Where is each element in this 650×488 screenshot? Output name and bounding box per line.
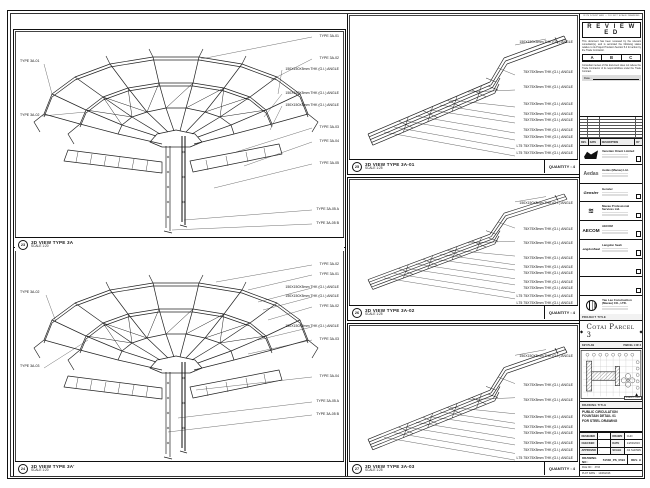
drawing-number-row: DRAWING NO : 51536_PS_0594 REV. A	[580, 455, 643, 465]
disclaimer-note: IF IN DOUBT ASK — DO NOT SCALE DRAWING	[580, 13, 643, 20]
checked-label: CHECKED	[580, 440, 598, 446]
sheet-border: TYPE 3A-01 TYPE 3A-02 150X150X5mm THK (G…	[7, 10, 645, 479]
company-row-mps: ≋ Macau Professional Services Ltd.	[580, 202, 643, 221]
truss-drawing	[16, 250, 343, 461]
leader-label: TYPE 3A-03	[320, 126, 339, 130]
company-checkbox	[636, 156, 642, 162]
address-lines	[602, 173, 628, 178]
company-checkbox	[636, 250, 642, 256]
company-row-yaulee: Yau Lee Construction (Macau) CO., LTD.	[580, 296, 643, 314]
leader-label: L75 75X75X5mm THK (G.I.) ANGLE	[516, 295, 573, 299]
panel-3d-view-type-3a-02: 150X150X5mm THK (G.I.) ANGLE 75X75X5mm T…	[347, 177, 580, 321]
aedas-logo: Aedas	[582, 171, 600, 177]
leader-label: TYPE 3A-02	[320, 305, 339, 309]
leader-label: 75X75X5mm THK (G.I.) ANGLE	[523, 71, 573, 75]
company-checkbox	[636, 231, 642, 237]
leader-label: TYPE 3A-01	[320, 35, 339, 39]
company-name: Aedas (Macau) Ltd.	[602, 169, 641, 172]
plot-value: 14/03/2016	[598, 472, 610, 475]
detail-bubble: 27	[352, 464, 362, 474]
leader-label: TYPE 3A-05 B	[316, 222, 339, 226]
quantity-label: QUANTITY : 4	[544, 462, 575, 475]
leader-label: TYPE 3A-03	[320, 338, 339, 342]
address-lines	[602, 154, 628, 159]
company-checkbox	[636, 213, 642, 219]
plot-row: PLOT DATE : 14/03/2016	[580, 471, 643, 476]
detail-bubble: 25	[352, 162, 362, 172]
review-stamp: R E V I E W E D This document has been r…	[580, 20, 643, 117]
project-title-band: PROJECT TITLE	[580, 314, 643, 321]
leader-label: TYPE 3A-01	[320, 273, 339, 277]
quantity-label: QUANTITY : 4	[544, 306, 575, 319]
file-label: FILE NO :	[582, 466, 593, 469]
panel-3d-view-type-3a-03: 150X150X5mm THK (G.I.) ANGLE 75X75X5mm T…	[347, 323, 580, 477]
designed-label: DESIGNED	[580, 433, 598, 439]
file-value: 3733	[595, 466, 600, 469]
drawing-title: PUBLIC CIRCULATION FOUNTAIN DETAIL 01 FO…	[580, 409, 643, 432]
consultant-list: Venetian Orient Limited Aedas Aedas (Mac…	[580, 146, 643, 314]
drawing-title-band: DRAWING TITLE	[580, 402, 643, 409]
leader-label: L75 75X75X5mm THK (G.I.) ANGLE	[516, 152, 573, 156]
stamp-paragraph-1: This document has been reviewed by the r…	[582, 40, 641, 52]
address-lines	[602, 230, 628, 235]
project-name: Cotai Parcel 3	[586, 323, 636, 339]
panel-caption: 27 3D VIEW TYPE 3A-03 SCALE 1:25 QUANTIT…	[349, 461, 578, 475]
status-a: A	[583, 55, 601, 61]
stamp-paragraph-2: Consultant review of this document does …	[582, 64, 641, 73]
leader-label: 75X75X5mm THK (G.I.) ANGLE	[523, 129, 573, 133]
revision-header: REV. DATE DESCRIPTION BY	[580, 138, 643, 145]
leader-label: TYPE 3A-05 A	[316, 400, 339, 404]
stamp-date-line: Date :	[582, 75, 641, 81]
leader-label: 150X150X5mm THK (G.I.) ANGLE	[285, 325, 339, 329]
leader-label: L75 75X75X5mm THK (G.I.) ANGLE	[516, 145, 573, 149]
truss-drawing	[16, 32, 343, 237]
status-abc-row: A B C	[582, 54, 641, 62]
keyplan-drawing	[580, 349, 643, 401]
ornament-icon: ◆	[580, 329, 583, 334]
mps-logo: ≋	[582, 207, 600, 215]
project-title: ◆ Cotai Parcel 3 ◆	[580, 321, 643, 342]
scale-label: SCALE	[611, 448, 625, 454]
date-col: DATE	[589, 139, 601, 145]
keyplan-label: KEY PLAN	[582, 344, 594, 347]
drawn-label: DRAWN	[611, 433, 625, 439]
company-row-aecom: AECOM AECOM	[580, 221, 643, 240]
company-row-venetian: Venetian Orient Limited	[580, 146, 643, 165]
leader-label: TYPE 3A-02	[20, 291, 39, 295]
detail-bubble: 24	[18, 464, 28, 474]
leader-label: TYPE 3A-02	[20, 114, 39, 118]
title-block: IF IN DOUBT ASK — DO NOT SCALE DRAWING R…	[579, 13, 643, 476]
company-row-empty-1	[580, 259, 643, 278]
address-lines	[602, 212, 628, 217]
date-label: DATE	[611, 440, 625, 446]
aecom-logo: AECOM	[582, 228, 600, 233]
yaulee-logo	[586, 300, 597, 311]
leader-label: 75X75X5mm THK (G.I.) ANGLE	[523, 228, 573, 232]
by-col: BY	[635, 139, 643, 145]
status-c: C	[622, 55, 640, 61]
drawing-no-value: 51536_PS_0594	[603, 458, 625, 462]
leader-label: TYPE 3A-03	[20, 365, 39, 369]
leader-label: 75X75X5mm THK (G.I.) ANGLE	[523, 257, 573, 261]
date-value: 14/03/2016	[625, 440, 643, 446]
leader-label: 150X150X5mm THK (G.I.) ANGLE	[285, 68, 339, 72]
drawing-title-line: FOR STEEL DRAWING	[582, 419, 641, 423]
leader-label: 75X75X5mm THK (G.I.) ANGLE	[523, 272, 573, 276]
company-name: Gensler	[602, 188, 641, 191]
leader-label: TYPE 3A-05	[320, 162, 339, 166]
drawing-no-label: DRAWING NO :	[582, 456, 601, 464]
leader-label: TYPE 3A-04	[320, 140, 339, 144]
info-row: CHECKED - DATE 14/03/2016	[580, 440, 643, 447]
leader-label: 75X75X5mm THK (G.I.) ANGLE	[523, 442, 573, 446]
approved-value: -	[598, 448, 611, 454]
panel-caption: 23 3D VIEW TYPE 3A SCALE 1:20	[15, 237, 344, 251]
leader-label: TYPE 3A-05 B	[316, 413, 339, 417]
leader-label: TYPE 3A-05 A	[316, 208, 339, 212]
reviewed-heading: R E V I E W E D	[582, 22, 641, 38]
designed-value: -	[598, 433, 611, 439]
date-rule	[593, 76, 639, 80]
leader-label: 150X150X5mm THK (G.I.) ANGLE	[519, 41, 573, 45]
company-row-empty-2	[580, 277, 643, 296]
checked-value: -	[598, 440, 611, 446]
rev-value: A	[639, 458, 641, 462]
keyplan-ref: PARCEL 1 OF 3	[623, 344, 641, 347]
leader-label: 75X75X5mm THK (G.I.) ANGLE	[523, 399, 573, 403]
keyplan-scale: SCALE 1:2000	[624, 396, 642, 400]
company-row-gensler: Gensler Gensler	[580, 184, 643, 203]
key-plan: KEY PLAN PARCEL 1 OF 3	[580, 342, 643, 402]
company-name: Yau Lee Construction (Macau) CO., LTD.	[602, 299, 641, 305]
address-lines	[602, 306, 628, 311]
panel-caption: 26 3D VIEW TYPE 3A-02 SCALE 1:25 QUANTIT…	[349, 305, 578, 319]
status-b: B	[602, 55, 620, 61]
rev-label: REV.	[631, 458, 638, 462]
company-row-aedas: Aedas Aedas (Macau) Ltd.	[580, 165, 643, 184]
description-col: DESCRIPTION	[601, 139, 636, 145]
view-scale: SCALE 1:25	[365, 167, 415, 171]
leader-label: 75X75X5mm THK (G.I.) ANGLE	[523, 281, 573, 285]
panel-caption: 24 3D VIEW TYPE 3A' SCALE 1:20	[15, 461, 344, 475]
plot-label: PLOT DATE :	[582, 472, 596, 475]
file-row: FILE NO : 3733	[580, 465, 643, 471]
company-checkbox	[636, 288, 642, 294]
leader-label: 150X150X5mm THK (G.I.) ANGLE	[519, 355, 573, 359]
leader-label: TYPE 3A-01	[20, 60, 39, 64]
address-lines	[602, 192, 628, 197]
leader-label: 75X75X5mm THK (G.I.) ANGLE	[523, 86, 573, 90]
detail-bubble: 23	[18, 240, 28, 250]
leader-label: 150X150X5mm THK (G.I.) ANGLE	[285, 104, 339, 108]
leader-label: 75X75X5mm THK (G.I.) ANGLE	[523, 119, 573, 123]
langdonseah-logo: LangdonSeah	[582, 247, 600, 251]
leader-label: 75X75X5mm THK (G.I.) ANGLE	[523, 432, 573, 436]
leader-label: 75X75X5mm THK (G.I.) ANGLE	[523, 426, 573, 430]
quantity-label: QUANTITY : 4	[544, 160, 575, 173]
detail-bubble: 26	[352, 308, 362, 318]
leader-label: 75X75X5mm THK (G.I.) ANGLE	[523, 136, 573, 140]
date-label: Date :	[584, 76, 591, 80]
leader-label: L75 75X75X5mm THK (G.I.) ANGLE	[516, 457, 573, 461]
view-scale: SCALE 1:25	[365, 469, 415, 473]
panel-3d-view-type-3a: TYPE 3A-01 TYPE 3A-02 150X150X5mm THK (G…	[13, 29, 346, 253]
rev-col: REV.	[580, 139, 589, 145]
panel-caption: 25 3D VIEW TYPE 3A-01 SCALE 1:25 QUANTIT…	[349, 159, 578, 173]
leader-label: 75X75X5mm THK (G.I.) ANGLE	[523, 416, 573, 420]
leader-label: 75X75X5mm THK (G.I.) ANGLE	[523, 113, 573, 117]
leader-label: 75X75X5mm THK (G.I.) ANGLE	[523, 103, 573, 107]
scale-value: AS SHOWN	[625, 448, 643, 454]
leader-label: TYPE 3A-02	[320, 263, 339, 267]
address-lines	[602, 248, 628, 253]
leader-label: 150X150X5mm THK (G.I.) ANGLE	[519, 202, 573, 206]
gensler-logo: Gensler	[582, 190, 600, 195]
leader-label: 75X75X5mm THK (G.I.) ANGLE	[523, 266, 573, 270]
leader-label: TYPE 3A-04	[320, 375, 339, 379]
leader-label: 75X75X5mm THK (G.I.) ANGLE	[523, 242, 573, 246]
venetian-logo	[584, 150, 598, 159]
drawn-value: CHO	[625, 433, 643, 439]
view-scale: SCALE 1:20	[31, 245, 73, 249]
leader-label: TYPE 3A-02	[320, 57, 339, 61]
info-row: APPROVED - SCALE AS SHOWN	[580, 448, 643, 454]
company-name: Macau Professional Services Ltd.	[602, 205, 641, 211]
company-name: Venetian Orient Limited	[602, 150, 641, 153]
view-scale: SCALE 1:25	[365, 313, 415, 317]
panel-3d-view-type-3a-prime: TYPE 3A-02 TYPE 3A-01 150X150X5mm THK (G…	[13, 247, 346, 477]
leader-label: 75X75X5mm THK (G.I.) ANGLE	[523, 449, 573, 453]
view-scale: SCALE 1:20	[31, 469, 75, 473]
company-name: AECOM	[602, 225, 641, 228]
leader-label: 150X150X5mm THK (G.I.) ANGLE	[285, 286, 339, 290]
panel-3d-view-type-3a-01: 150X150X5mm THK (G.I.) ANGLE 75X75X5mm T…	[347, 13, 580, 175]
revision-table: REV. DATE DESCRIPTION BY	[580, 117, 643, 146]
ornament-icon: ◆	[640, 329, 643, 334]
leader-label: 150X150X5mm THK (G.I.) ANGLE	[285, 295, 339, 299]
drawing-info-table: DESIGNED - DRAWN CHO CHECKED - DATE 14/0…	[580, 432, 643, 455]
drawing-sheet-page: TYPE 3A-01 TYPE 3A-02 150X150X5mm THK (G…	[0, 0, 650, 488]
company-name: Langdon Seah	[602, 244, 641, 247]
approved-label: APPROVED	[580, 448, 598, 454]
leader-label: 150X150X5mm THK (G.I.) ANGLE	[285, 92, 339, 96]
leader-label: 75X75X5mm THK (G.I.) ANGLE	[523, 287, 573, 291]
leader-label: 75X75X5mm THK (G.I.) ANGLE	[523, 384, 573, 388]
company-checkbox	[636, 194, 642, 200]
company-row-langdonseah: LangdonSeah Langdon Seah	[580, 240, 643, 259]
info-row: DESIGNED - DRAWN CHO	[580, 433, 643, 440]
company-checkbox	[636, 269, 642, 275]
